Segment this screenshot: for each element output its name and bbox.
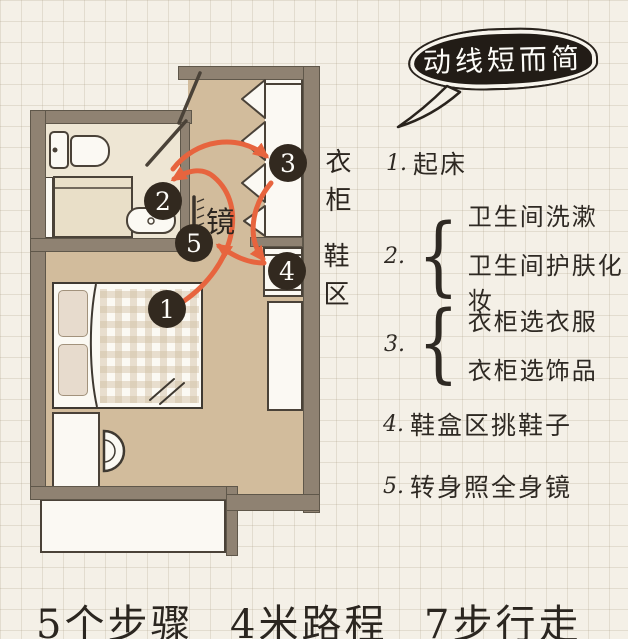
wall-bottom-right: [226, 494, 320, 511]
pillow: [58, 290, 88, 337]
side-cabinet: [267, 301, 303, 411]
list-item-1-number: 1.: [386, 151, 407, 176]
step-badge-4: 4: [268, 252, 306, 290]
summary-footer: 5个步骤 4米路程 7步行走: [0, 592, 628, 639]
list-item-3-brace: {: [418, 305, 459, 382]
footer-stat-distance: 4米路程: [230, 592, 387, 639]
wall-left: [30, 110, 46, 500]
step-badge-3-number: 3: [280, 151, 296, 176]
list-item-4-text: 鞋盒区挑鞋子: [410, 406, 572, 442]
balcony: [40, 499, 226, 553]
step-badge-2-number: 2: [155, 189, 171, 214]
speech-bubble: 动线短而简: [407, 26, 599, 93]
pillow: [58, 344, 88, 396]
list-item-2-number: 2.: [384, 244, 405, 269]
step-badge-5-number: 5: [186, 231, 202, 256]
hand-drawn-floorplan-page: 1 2 3 4 5 镜 衣柜 鞋区 动线短而简 1. 起床 2. { 卫生间洗漱…: [0, 0, 628, 639]
list-item-3-line-1: 衣柜选衣服: [468, 302, 598, 337]
toilet-tank-icon: [49, 131, 69, 169]
list-item-3: 3. { 衣柜选衣服 衣柜选饰品: [384, 302, 598, 386]
wall-bathroom-top: [30, 110, 192, 124]
nightstand: [52, 412, 100, 489]
list-item-1-text: 起床: [413, 145, 467, 181]
list-item-5: 5. 转身照全身镜: [383, 468, 572, 504]
list-item-2-lines: 卫生间洗漱 卫生间护肤化妆: [468, 197, 628, 316]
toilet-bowl-icon: [70, 135, 110, 167]
wall-wardrobe-shoe-divider: [250, 237, 303, 247]
list-item-2-brace: {: [418, 218, 459, 295]
wall-bathroom-bedroom: [30, 238, 190, 252]
list-item-3-number: 3.: [384, 332, 405, 357]
list-item-1: 1. 起床: [386, 145, 467, 181]
list-item-4: 4. 鞋盒区挑鞋子: [383, 406, 572, 442]
step-badge-1-number: 1: [159, 297, 175, 322]
wall-bottom-left: [30, 486, 232, 500]
speech-bubble-tail: [398, 86, 460, 127]
list-item-2-line-1: 卫生间洗漱: [468, 197, 628, 232]
step-badge-1: 1: [148, 290, 186, 328]
list-item-4-number: 4.: [383, 412, 404, 437]
list-item-3-lines: 衣柜选衣服 衣柜选饰品: [468, 302, 598, 386]
step-badge-2: 2: [144, 182, 182, 220]
list-item-5-number: 5.: [383, 474, 404, 499]
step-badge-4-number: 4: [279, 259, 295, 284]
wardrobe-label: 衣柜: [318, 148, 355, 224]
wall-entry-top: [178, 66, 320, 80]
step-badge-3: 3: [269, 144, 307, 182]
footer-stat-paces: 7步行走: [424, 592, 581, 639]
shower-area: [53, 176, 133, 238]
list-item-5-text: 转身照全身镜: [410, 468, 572, 504]
list-item-3-line-2: 衣柜选饰品: [468, 351, 598, 386]
mirror-label: 镜: [206, 199, 235, 241]
speech-bubble-text: 动线短而简: [422, 37, 583, 81]
shoe-area-label: 鞋区: [316, 242, 353, 318]
footer-stat-steps: 5个步骤: [36, 592, 193, 639]
